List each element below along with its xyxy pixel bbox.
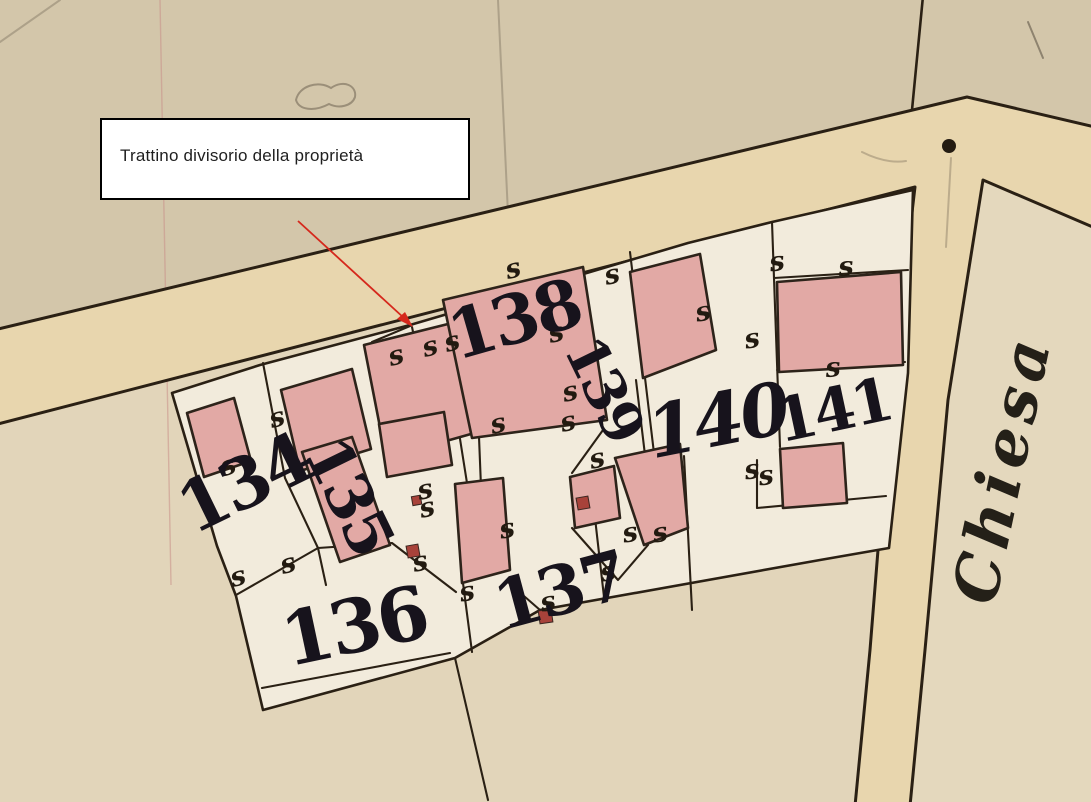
annotation-box: Trattino divisorio della proprietà <box>100 118 470 200</box>
annotation-text: Trattino divisorio della proprietà <box>102 146 363 172</box>
building <box>777 272 903 372</box>
building <box>379 412 452 477</box>
ink-dot <box>942 139 956 153</box>
building <box>570 466 620 528</box>
marker-square <box>576 496 590 510</box>
survey-mark: s <box>836 251 855 283</box>
cadastral-map: s s s s s s s s s s s s s s s s s s s s … <box>0 0 1091 802</box>
